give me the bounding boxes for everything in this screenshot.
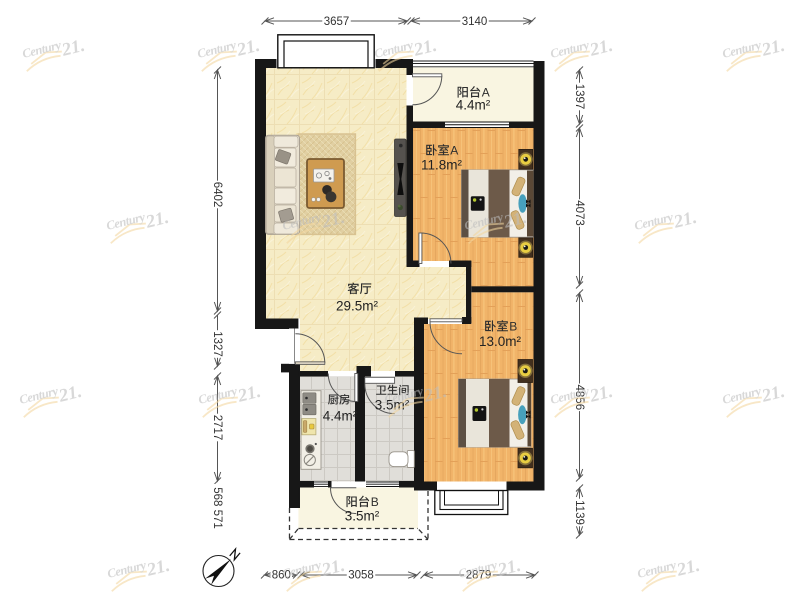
svg-text:2717: 2717 <box>211 415 223 441</box>
svg-text:4.4m²: 4.4m² <box>323 409 358 424</box>
svg-text:3.5m²: 3.5m² <box>345 509 380 524</box>
svg-text:29.5m²: 29.5m² <box>336 299 379 314</box>
svg-text:1139: 1139 <box>573 500 585 525</box>
svg-text:3657: 3657 <box>324 16 350 28</box>
svg-text:568 571: 568 571 <box>211 487 223 529</box>
svg-text:1327: 1327 <box>211 331 223 357</box>
svg-text:13.0m²: 13.0m² <box>479 334 522 349</box>
svg-text:4.4m²: 4.4m² <box>456 98 491 113</box>
svg-text:4073: 4073 <box>573 200 585 226</box>
svg-text:A: A <box>450 144 458 158</box>
svg-text:1397: 1397 <box>573 84 585 110</box>
svg-text:3140: 3140 <box>462 16 488 28</box>
svg-text:B: B <box>371 495 379 509</box>
svg-text:B: B <box>509 320 517 334</box>
svg-text:6402: 6402 <box>211 182 223 208</box>
svg-text:11.8m²: 11.8m² <box>421 157 463 172</box>
svg-text:3058: 3058 <box>348 570 374 582</box>
